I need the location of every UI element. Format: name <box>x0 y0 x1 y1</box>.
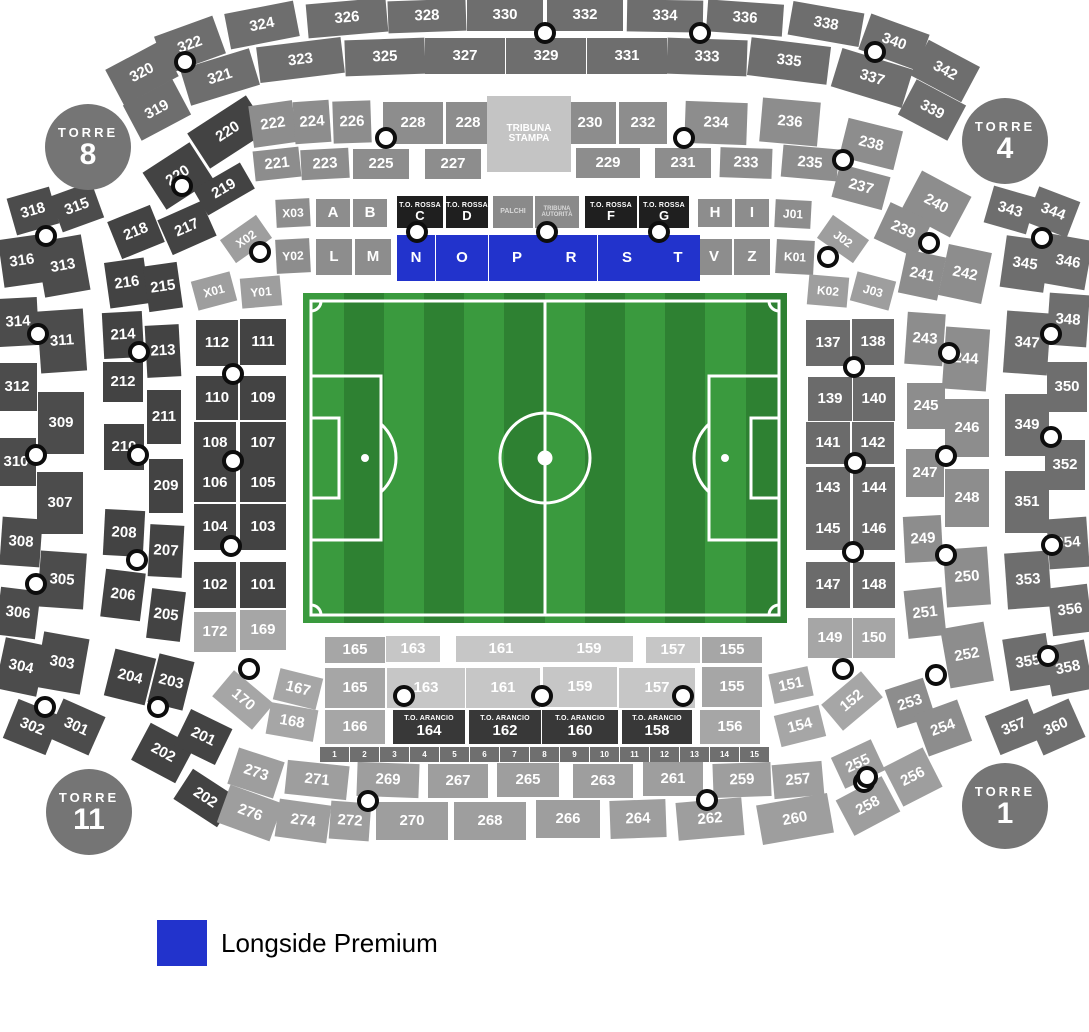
section-149[interactable]: 149 <box>808 618 852 658</box>
entrance-marker <box>844 452 866 474</box>
section-162[interactable]: T.O. ARANCIO162 <box>469 710 541 744</box>
section-233[interactable]: 233 <box>719 147 772 179</box>
section-103[interactable]: 103 <box>240 504 286 550</box>
section-259[interactable]: 259 <box>712 762 771 798</box>
section-102[interactable]: 102 <box>194 562 236 608</box>
section-112[interactable]: 112 <box>196 320 238 366</box>
gate-number-6: 6 <box>470 747 499 762</box>
entrance-marker <box>673 127 695 149</box>
section-139[interactable]: 139 <box>808 377 852 421</box>
section-330[interactable]: 330 <box>467 0 543 31</box>
section-261[interactable]: 261 <box>643 762 703 796</box>
section-palchi[interactable]: PALCHI <box>493 196 533 228</box>
section-351[interactable]: 351 <box>1005 471 1049 533</box>
section-j03[interactable]: J03 <box>850 271 896 310</box>
section-216[interactable]: 216 <box>104 257 150 308</box>
entrance-marker <box>1031 227 1053 249</box>
section-159[interactable]: 159 <box>545 636 633 662</box>
section-308[interactable]: 308 <box>0 517 43 568</box>
section-j01[interactable]: J01 <box>774 199 811 229</box>
entrance-marker <box>375 127 397 149</box>
entrance-marker <box>648 221 670 243</box>
section-324[interactable]: 324 <box>224 1 300 50</box>
section-160[interactable]: T.O. ARANCIO160 <box>542 710 618 744</box>
section-268[interactable]: 268 <box>454 802 526 840</box>
entrance-marker <box>832 658 854 680</box>
tower-4: TORRE4 <box>962 98 1048 184</box>
gate-number-15: 15 <box>740 747 769 762</box>
section-l[interactable]: L <box>316 239 352 275</box>
section-207[interactable]: 207 <box>148 524 185 578</box>
section-343[interactable]: 343 <box>984 186 1037 235</box>
entrance-marker <box>938 342 960 364</box>
section-152[interactable]: 152 <box>821 671 883 730</box>
entrance-marker <box>126 549 148 571</box>
section-309[interactable]: 309 <box>38 392 84 454</box>
section-264[interactable]: 264 <box>609 799 666 839</box>
section-227[interactable]: 227 <box>425 149 481 179</box>
entrance-marker <box>536 221 558 243</box>
stadium-seat-map-page: 123456789101112131415 320322324326328330… <box>0 0 1089 1032</box>
entrance-marker <box>842 541 864 563</box>
entrance-marker <box>689 22 711 44</box>
section-265[interactable]: 265 <box>497 763 559 797</box>
entrance-marker <box>935 445 957 467</box>
section-260[interactable]: 260 <box>756 793 834 845</box>
section-s[interactable]: S <box>598 235 656 281</box>
entrance-marker <box>34 696 56 718</box>
section-a[interactable]: A <box>316 199 350 227</box>
section-206[interactable]: 206 <box>100 569 146 622</box>
stadium-map: 123456789101112131415 320322324326328330… <box>0 0 1089 1032</box>
section-252[interactable]: 252 <box>940 622 994 689</box>
entrance-marker <box>222 450 244 472</box>
section-o[interactable]: O <box>436 235 488 281</box>
section-170[interactable]: 170 <box>212 670 274 729</box>
section-212[interactable]: 212 <box>103 362 143 402</box>
section-224[interactable]: 224 <box>293 100 332 144</box>
gate-number-2: 2 <box>350 747 379 762</box>
section-226[interactable]: 226 <box>332 100 371 143</box>
gate-number-7: 7 <box>500 747 529 762</box>
gate-number-strip: 123456789101112131415 <box>320 747 769 762</box>
section-360[interactable]: 360 <box>1026 698 1085 755</box>
entrance-marker <box>1037 645 1059 667</box>
gate-number-12: 12 <box>650 747 679 762</box>
section-151[interactable]: 151 <box>768 666 813 704</box>
section-327[interactable]: 327 <box>425 38 505 74</box>
entrance-marker <box>147 696 169 718</box>
section-350[interactable]: 350 <box>1047 362 1087 412</box>
entrance-marker <box>174 51 196 73</box>
gate-number-1: 1 <box>320 747 349 762</box>
section-147[interactable]: 147 <box>806 562 850 608</box>
section-168[interactable]: 168 <box>266 702 319 742</box>
section-161[interactable]: 161 <box>456 636 546 662</box>
legend: Longside Premium <box>157 920 438 966</box>
section-h[interactable]: H <box>698 199 732 227</box>
section-235[interactable]: 235 <box>781 145 840 182</box>
entrance-marker <box>25 444 47 466</box>
entrance-marker <box>935 544 957 566</box>
section-270[interactable]: 270 <box>376 802 448 840</box>
legend-color-swatch-longside-premium <box>157 920 207 966</box>
section-312[interactable]: 312 <box>0 363 37 411</box>
entrance-marker <box>127 444 149 466</box>
entrance-marker <box>856 766 878 788</box>
section-141[interactable]: 141 <box>806 422 850 464</box>
section-x01[interactable]: X01 <box>191 271 237 310</box>
section-228[interactable]: 228 <box>446 102 490 144</box>
entrance-marker <box>1040 323 1062 345</box>
section-325[interactable]: 325 <box>344 38 425 77</box>
gate-number-14: 14 <box>710 747 739 762</box>
section-323[interactable]: 323 <box>256 37 345 83</box>
section-165[interactable]: 165 <box>325 668 385 708</box>
entrance-marker <box>696 789 718 811</box>
entrance-marker <box>220 535 242 557</box>
section-213[interactable]: 213 <box>145 324 182 378</box>
gate-number-13: 13 <box>680 747 709 762</box>
section-333[interactable]: 333 <box>666 38 747 77</box>
entrance-marker <box>357 790 379 812</box>
entrance-marker <box>393 685 415 707</box>
section-107[interactable]: 107 <box>240 422 286 464</box>
entrance-marker <box>925 664 947 686</box>
section-137[interactable]: 137 <box>806 320 850 366</box>
section-205[interactable]: 205 <box>146 588 186 642</box>
entrance-marker <box>531 685 553 707</box>
section-209[interactable]: 209 <box>149 459 183 513</box>
section-231[interactable]: 231 <box>655 148 711 178</box>
section-111[interactable]: 111 <box>240 319 286 365</box>
section-229[interactable]: 229 <box>576 148 640 178</box>
section-336[interactable]: 336 <box>706 0 784 37</box>
section-331[interactable]: 331 <box>587 38 667 74</box>
section-165[interactable]: 165 <box>325 637 385 663</box>
section-150[interactable]: 150 <box>853 618 895 658</box>
tower-11: TORRE11 <box>46 769 132 855</box>
entrance-marker <box>406 221 428 243</box>
section-266[interactable]: 266 <box>536 800 600 838</box>
section-145[interactable]: 145 <box>806 508 850 550</box>
section-105[interactable]: 105 <box>240 464 286 502</box>
gate-number-9: 9 <box>560 747 589 762</box>
section-307[interactable]: 307 <box>37 472 83 534</box>
section-143[interactable]: 143 <box>806 467 850 509</box>
section-232[interactable]: 232 <box>619 102 667 144</box>
section-y02[interactable]: Y02 <box>275 238 311 274</box>
entrance-marker <box>25 573 47 595</box>
section-225[interactable]: 225 <box>353 149 409 179</box>
section-163[interactable]: 163 <box>386 636 440 662</box>
gate-number-3: 3 <box>380 747 409 762</box>
entrance-marker <box>171 175 193 197</box>
section-332[interactable]: 332 <box>547 0 623 31</box>
section-155[interactable]: 155 <box>702 637 762 663</box>
section-k01[interactable]: K01 <box>775 239 815 275</box>
tower-8: TORRE8 <box>45 104 131 190</box>
section-274[interactable]: 274 <box>275 799 332 844</box>
section-156[interactable]: 156 <box>700 710 760 744</box>
section-263[interactable]: 263 <box>573 764 633 798</box>
section-257[interactable]: 257 <box>772 761 825 799</box>
entrance-marker <box>35 225 57 247</box>
gate-number-10: 10 <box>590 747 619 762</box>
section-166[interactable]: 166 <box>325 710 385 744</box>
section-v[interactable]: V <box>696 239 732 275</box>
section-218[interactable]: 218 <box>107 205 165 259</box>
gate-number-4: 4 <box>410 747 439 762</box>
section-p[interactable]: P <box>489 235 545 281</box>
section-215[interactable]: 215 <box>143 262 183 312</box>
section-335[interactable]: 335 <box>747 37 831 84</box>
section-159[interactable]: 159 <box>543 667 617 707</box>
section-236[interactable]: 236 <box>759 98 821 147</box>
section-155[interactable]: 155 <box>702 667 762 707</box>
entrance-marker <box>1040 426 1062 448</box>
section-211[interactable]: 211 <box>147 390 181 444</box>
section-356[interactable]: 356 <box>1047 584 1089 637</box>
section-m[interactable]: M <box>355 239 391 275</box>
section-221[interactable]: 221 <box>253 147 302 182</box>
entrance-marker <box>918 232 940 254</box>
section-326[interactable]: 326 <box>306 0 389 38</box>
tower-1: TORRE1 <box>962 763 1048 849</box>
entrance-marker <box>817 246 839 268</box>
section-245[interactable]: 245 <box>907 383 945 429</box>
section-tribuna-stampa[interactable]: TRIBUNASTAMPA <box>487 96 571 172</box>
entrance-marker <box>222 363 244 385</box>
entrance-marker <box>843 356 865 378</box>
gate-number-8: 8 <box>530 747 559 762</box>
section-y01[interactable]: Y01 <box>240 275 282 308</box>
legend-label: Longside Premium <box>221 928 438 959</box>
section-338[interactable]: 338 <box>788 1 865 47</box>
gate-number-5: 5 <box>440 747 469 762</box>
section-157[interactable]: 157 <box>646 637 700 663</box>
gate-number-11: 11 <box>620 747 649 762</box>
section-222[interactable]: 222 <box>248 100 297 148</box>
section-242[interactable]: 242 <box>938 244 992 304</box>
section-158[interactable]: T.O. ARANCIO158 <box>622 710 692 744</box>
section-154[interactable]: 154 <box>774 705 826 747</box>
entrance-marker <box>1041 534 1063 556</box>
section-x03[interactable]: X03 <box>275 198 310 228</box>
section-109[interactable]: 109 <box>240 376 286 420</box>
section-328[interactable]: 328 <box>387 0 466 33</box>
section-353[interactable]: 353 <box>1004 551 1052 610</box>
football-pitch <box>303 293 787 623</box>
section-271[interactable]: 271 <box>284 760 349 800</box>
section-223[interactable]: 223 <box>300 148 350 180</box>
entrance-marker <box>238 658 260 680</box>
section-i[interactable]: I <box>735 199 769 227</box>
entrance-marker <box>249 241 271 263</box>
section-248[interactable]: 248 <box>945 469 989 527</box>
section-349[interactable]: 349 <box>1005 394 1049 456</box>
entrance-marker <box>672 685 694 707</box>
section-d[interactable]: T.O. ROSSAD <box>446 196 488 228</box>
section-267[interactable]: 267 <box>428 764 488 798</box>
section-230[interactable]: 230 <box>564 102 616 144</box>
section-b[interactable]: B <box>353 199 387 227</box>
section-f[interactable]: T.O. ROSSAF <box>585 196 637 228</box>
section-101[interactable]: 101 <box>240 562 286 608</box>
section-164[interactable]: T.O. ARANCIO164 <box>393 710 465 744</box>
section-r[interactable]: R <box>545 235 597 281</box>
entrance-marker <box>27 323 49 345</box>
section-172[interactable]: 172 <box>194 612 236 652</box>
section-169[interactable]: 169 <box>240 610 286 650</box>
section-303[interactable]: 303 <box>34 631 89 694</box>
entrance-marker <box>534 22 556 44</box>
section-144[interactable]: 144 <box>853 467 895 509</box>
entrance-marker <box>832 149 854 171</box>
entrance-marker <box>864 41 886 63</box>
section-140[interactable]: 140 <box>853 377 895 421</box>
entrance-marker <box>128 341 150 363</box>
section-k02[interactable]: K02 <box>807 274 849 307</box>
section-148[interactable]: 148 <box>853 562 895 608</box>
section-161[interactable]: 161 <box>466 668 540 708</box>
section-z[interactable]: Z <box>734 239 770 275</box>
